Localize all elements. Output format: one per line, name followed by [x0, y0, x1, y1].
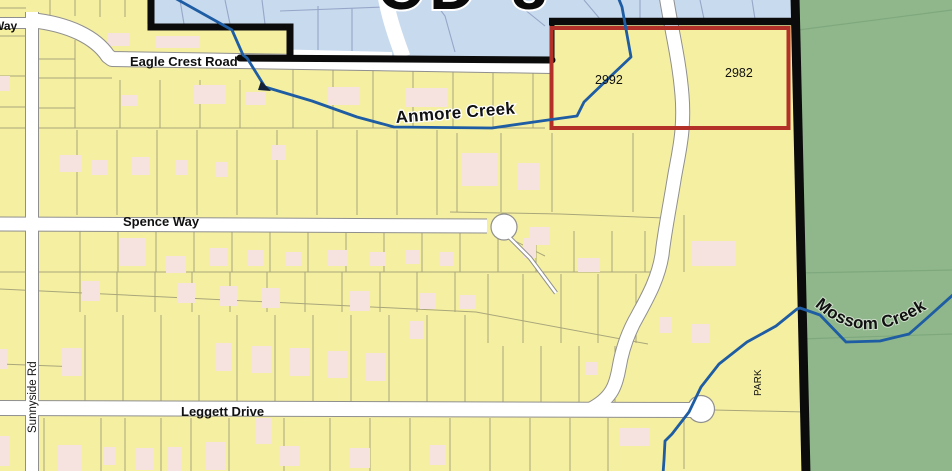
- svg-text:PARK: PARK: [753, 369, 764, 396]
- svg-text:2992: 2992: [595, 73, 623, 87]
- svg-text:Eagle Crest Road: Eagle Crest Road: [130, 54, 238, 69]
- svg-text:2982: 2982: [725, 66, 753, 80]
- svg-text:CD 8: CD 8: [377, 0, 553, 23]
- svg-text:Way: Way: [0, 19, 18, 33]
- svg-text:Leggett Drive: Leggett Drive: [181, 404, 264, 419]
- svg-text:Spence Way: Spence Way: [123, 214, 200, 229]
- svg-text:Sunnyside Rd: Sunnyside Rd: [27, 361, 39, 433]
